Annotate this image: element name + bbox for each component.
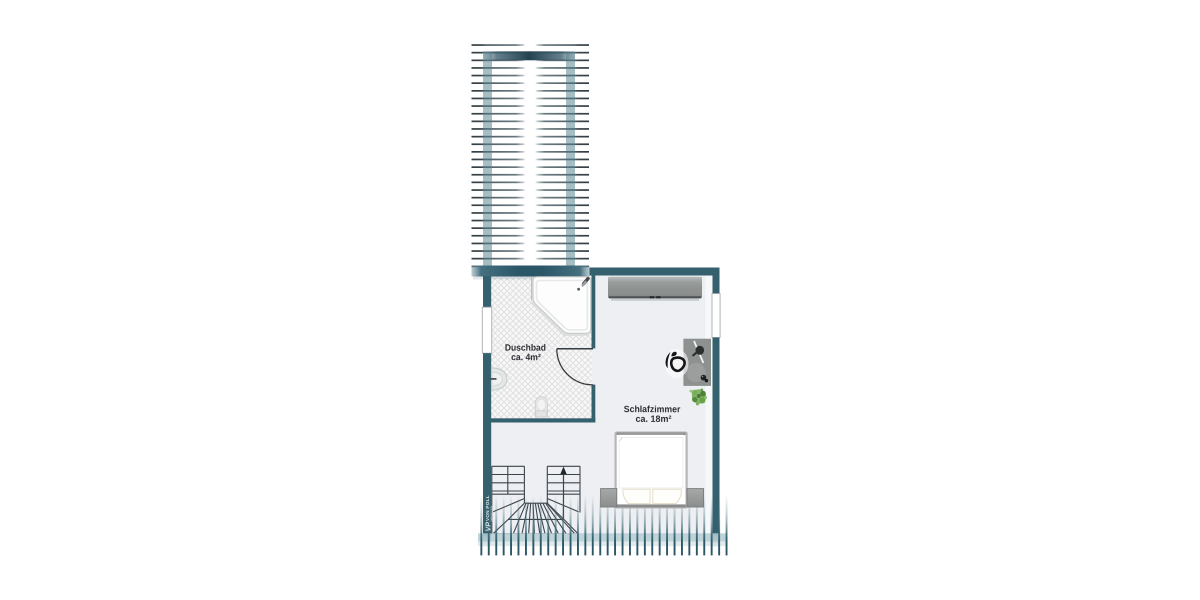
svg-text:IMMOBILIEN: IMMOBILIEN bbox=[491, 506, 493, 522]
svg-text:ca. 18m²: ca. 18m² bbox=[636, 414, 672, 424]
svg-text:Duschbad: Duschbad bbox=[505, 343, 546, 353]
svg-text:VP: VP bbox=[484, 522, 493, 532]
svg-text:ca. 4m²: ca. 4m² bbox=[511, 352, 541, 362]
svg-text:Schlafzimmer: Schlafzimmer bbox=[624, 404, 681, 414]
svg-text:VON POLL: VON POLL bbox=[485, 495, 490, 521]
